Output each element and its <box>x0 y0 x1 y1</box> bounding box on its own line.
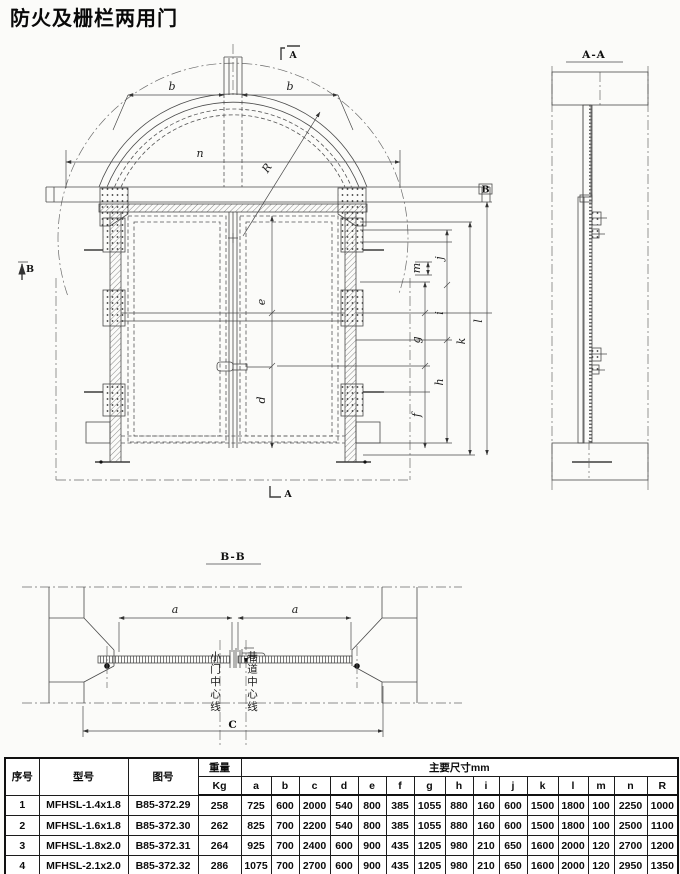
th-dim-c: c <box>299 777 330 796</box>
left-leaf-dashed <box>128 216 226 442</box>
cell-index: 3 <box>5 836 39 856</box>
tunnel-centerline-label: 巷道中心线 <box>243 651 258 714</box>
cell-weight: 264 <box>198 836 241 856</box>
dim-label-h: h <box>433 378 446 385</box>
th-dim-g: g <box>414 777 445 796</box>
cell-dim: 700 <box>271 836 299 856</box>
cell-dim: 2000 <box>299 795 330 816</box>
side-hinge <box>592 212 601 225</box>
cell-dim: 1055 <box>414 816 445 836</box>
cell-dim: 600 <box>499 795 527 816</box>
plan-top-bottom-lines <box>22 587 462 703</box>
center-mullion <box>229 212 237 448</box>
cell-dim: 385 <box>386 795 414 816</box>
cell-dim: 1800 <box>558 816 588 836</box>
th-dim-h: h <box>445 777 473 796</box>
dim-label-a-left: a <box>172 603 179 616</box>
cell-dim: 1055 <box>414 795 445 816</box>
table-header-row-1: 序号 型号 图号 重量 主要尺寸mm <box>5 758 678 777</box>
cell-dim: 2500 <box>614 816 647 836</box>
cell-dim: 650 <box>499 836 527 856</box>
dim-a-extensions <box>119 622 351 652</box>
dim-label-b-left: b <box>168 80 175 93</box>
cell-dim: 1500 <box>527 795 558 816</box>
table-row: 2 MFHSL-1.6x1.8 B85-372.30 262 825 700 2… <box>5 816 678 836</box>
foot-dot <box>363 460 366 463</box>
th-dim-a: a <box>241 777 271 796</box>
th-dim-n: n <box>614 777 647 796</box>
cell-dim: 1600 <box>527 856 558 874</box>
cell-dim: 700 <box>271 856 299 874</box>
side-view-aa: A-A <box>552 49 648 492</box>
cell-weight: 258 <box>198 795 241 816</box>
cell-model: MFHSL-1.8x2.0 <box>39 836 128 856</box>
dim-label-k: k <box>455 337 468 344</box>
cell-dim: 1205 <box>414 836 445 856</box>
cell-dim: 1000 <box>647 795 678 816</box>
cell-dim: 600 <box>271 795 299 816</box>
cell-dim: 980 <box>445 836 473 856</box>
th-dim-d: d <box>330 777 358 796</box>
cell-dim: 435 <box>386 836 414 856</box>
plan-left-wall <box>49 587 114 703</box>
door-handle <box>217 362 247 371</box>
cell-model: MFHSL-1.4x1.8 <box>39 795 128 816</box>
cell-dim: 2950 <box>614 856 647 874</box>
side-hinge <box>592 365 599 374</box>
th-dim-j: j <box>499 777 527 796</box>
th-dim-f: f <box>386 777 414 796</box>
cell-dim: 800 <box>358 795 386 816</box>
cell-dim: 120 <box>588 836 614 856</box>
cell-drawno: B85-372.29 <box>128 795 198 816</box>
cell-dim: 700 <box>271 816 299 836</box>
th-dim-b: b <box>271 777 299 796</box>
hinge <box>341 218 363 252</box>
dim-label-C: C <box>228 719 237 731</box>
cell-dim: 120 <box>588 856 614 874</box>
th-dim-R: R <box>647 777 678 796</box>
cell-index: 1 <box>5 795 39 816</box>
hinge <box>341 290 363 326</box>
cell-drawno: B85-372.30 <box>128 816 198 836</box>
cell-dim: 1800 <box>558 795 588 816</box>
cell-dim: 600 <box>499 816 527 836</box>
cell-dim: 600 <box>330 856 358 874</box>
frame-head-hatch <box>99 204 367 212</box>
th-weight: 重量 <box>198 758 241 777</box>
cell-dim: 540 <box>330 795 358 816</box>
section-marker-top-a: A <box>281 46 300 61</box>
section-marker-left-b: B <box>18 262 34 280</box>
arc-center-cross <box>228 233 238 243</box>
dim-label-f: f <box>410 411 423 418</box>
dim-label-R: R <box>259 161 275 176</box>
th-dims-group: 主要尺寸mm <box>241 758 678 777</box>
cell-dim: 1200 <box>647 836 678 856</box>
cell-dim: 2700 <box>299 856 330 874</box>
cell-dim: 210 <box>473 836 499 856</box>
plan-view-label: B-B <box>220 551 245 563</box>
cell-drawno: B85-372.32 <box>128 856 198 874</box>
th-weight-unit: Kg <box>198 777 241 796</box>
cell-dim: 385 <box>386 816 414 836</box>
cell-dim: 980 <box>445 856 473 874</box>
cell-dim: 1350 <box>647 856 678 874</box>
technical-drawing: b b n R e d m j i g h f k l A A <box>0 0 680 755</box>
bottom-bracket <box>86 422 110 443</box>
dim-label-j: j <box>433 256 446 263</box>
th-dim-l: l <box>558 777 588 796</box>
cell-dim: 1600 <box>527 836 558 856</box>
th-dim-m: m <box>588 777 614 796</box>
th-dim-i: i <box>473 777 499 796</box>
cell-dim: 800 <box>358 816 386 836</box>
bottom-bracket <box>356 422 380 443</box>
side-hinge <box>592 348 601 361</box>
cell-dim: 100 <box>588 816 614 836</box>
dim-label-m: m <box>410 263 423 273</box>
cell-dim: 1205 <box>414 856 445 874</box>
cell-dim: 1075 <box>241 856 271 874</box>
cell-dim: 2700 <box>614 836 647 856</box>
cell-dim: 925 <box>241 836 271 856</box>
section-marker-letter: A <box>288 50 297 61</box>
cell-dim: 900 <box>358 856 386 874</box>
section-marker-letter: A <box>283 489 292 500</box>
dim-R-line <box>243 112 320 236</box>
table-row: 4 MFHSL-2.1x2.0 B85-372.32 286 1075 700 … <box>5 856 678 874</box>
cell-dim: 160 <box>473 795 499 816</box>
cell-dim: 600 <box>330 836 358 856</box>
th-model: 型号 <box>39 758 128 795</box>
cell-dim: 100 <box>588 795 614 816</box>
cell-index: 4 <box>5 856 39 874</box>
cell-model: MFHSL-2.1x2.0 <box>39 856 128 874</box>
side-hinges <box>592 212 607 374</box>
hinge <box>103 384 125 416</box>
cell-dim: 2250 <box>614 795 647 816</box>
dim-extension-lines <box>277 202 492 455</box>
dim-label-n: n <box>196 147 203 160</box>
section-marker-letter: B <box>481 185 489 196</box>
cell-dim: 540 <box>330 816 358 836</box>
cell-weight: 262 <box>198 816 241 836</box>
section-marker-letter: B <box>26 264 34 275</box>
th-index: 序号 <box>5 758 39 795</box>
side-wall-chain-edges <box>552 66 648 492</box>
side-view-label: A-A <box>581 49 606 61</box>
top-post-dashed <box>224 94 242 187</box>
section-marker-bracket <box>270 486 281 497</box>
cell-dim: 160 <box>473 816 499 836</box>
th-dim-e: e <box>358 777 386 796</box>
dim-label-i: i <box>433 311 446 315</box>
cell-drawno: B85-372.31 <box>128 836 198 856</box>
section-marker-bottom-a: A <box>270 486 292 500</box>
cell-dim: 650 <box>499 856 527 874</box>
cell-dim: 435 <box>386 856 414 874</box>
dim-label-a-right: a <box>292 603 299 616</box>
arch-arcs-solid <box>99 94 367 187</box>
cell-dim: 880 <box>445 816 473 836</box>
cell-dim: 880 <box>445 795 473 816</box>
cell-dim: 2000 <box>558 856 588 874</box>
cell-dim: 1500 <box>527 816 558 836</box>
dim-b-extensions <box>113 95 353 130</box>
table-row: 1 MFHSL-1.4x1.8 B85-372.29 258 725 600 2… <box>5 795 678 816</box>
cell-model: MFHSL-1.6x1.8 <box>39 816 128 836</box>
hinge <box>103 218 125 252</box>
right-leaf-dashed <box>240 216 338 442</box>
front-view: b b n R e d m j i g h f k l A A <box>18 44 492 500</box>
table-row: 3 MFHSL-1.8x2.0 B85-372.31 264 925 700 2… <box>5 836 678 856</box>
foot-dot <box>99 460 102 463</box>
cell-dim: 2400 <box>299 836 330 856</box>
cell-dim: 725 <box>241 795 271 816</box>
drawing-sheet: 防火及栅栏两用门 <box>0 0 680 874</box>
plan-right-wall <box>352 587 417 703</box>
cell-dim: 825 <box>241 816 271 836</box>
cell-dim: 1100 <box>647 816 678 836</box>
handle-grip <box>217 362 233 371</box>
cell-weight: 286 <box>198 856 241 874</box>
dim-label-b-right: b <box>286 80 293 93</box>
cell-dim: 210 <box>473 856 499 874</box>
plan-view-bb: B-B a a C <box>22 551 462 748</box>
cell-dim: 900 <box>358 836 386 856</box>
spec-table: 序号 型号 图号 重量 主要尺寸mm Kg a b c d e f g h i … <box>4 757 679 874</box>
door-centerline-label: 小门中心线 <box>206 651 221 714</box>
hinges <box>84 218 384 416</box>
dim-label-e: e <box>255 298 268 305</box>
dim-ed-ticks <box>247 310 275 369</box>
side-hinge <box>592 229 599 238</box>
dim-label-l: l <box>472 319 485 323</box>
plan-pivot-centerlines <box>107 646 357 688</box>
cell-index: 2 <box>5 816 39 836</box>
dim-label-g: g <box>410 336 423 343</box>
side-hinge-ticks <box>592 218 607 370</box>
hinge <box>103 290 125 326</box>
th-dim-k: k <box>527 777 558 796</box>
hinge <box>341 384 363 416</box>
cell-dim: 2200 <box>299 816 330 836</box>
dim-label-d: d <box>255 396 268 403</box>
th-drawno: 图号 <box>128 758 198 795</box>
cell-dim: 2000 <box>558 836 588 856</box>
